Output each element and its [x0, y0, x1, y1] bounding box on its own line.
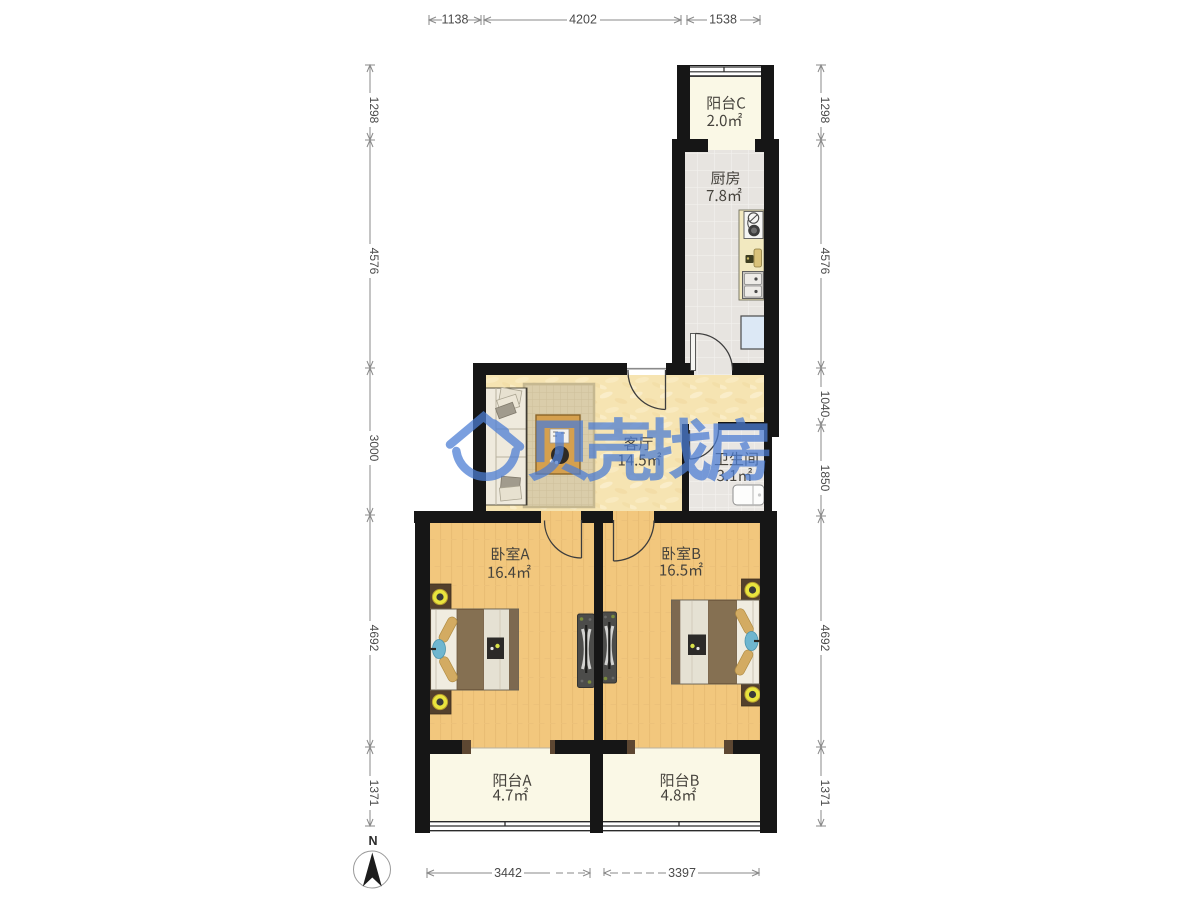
svg-text:3442: 3442 [494, 866, 522, 880]
svg-text:1138: 1138 [442, 13, 469, 27]
svg-text:N: N [368, 834, 377, 848]
svg-text:1850: 1850 [818, 465, 832, 492]
svg-text:4692: 4692 [818, 625, 832, 652]
svg-text:1371: 1371 [367, 780, 381, 807]
svg-text:4576: 4576 [818, 248, 832, 275]
svg-text:3397: 3397 [668, 866, 696, 880]
svg-text:4576: 4576 [367, 248, 381, 275]
svg-text:4692: 4692 [367, 625, 381, 652]
svg-text:1040: 1040 [818, 391, 832, 418]
svg-text:4202: 4202 [569, 13, 597, 27]
svg-text:3000: 3000 [367, 435, 381, 462]
svg-text:1538: 1538 [709, 13, 737, 27]
svg-text:1298: 1298 [367, 97, 381, 124]
svg-text:1371: 1371 [818, 780, 832, 807]
svg-text:1298: 1298 [818, 97, 832, 124]
